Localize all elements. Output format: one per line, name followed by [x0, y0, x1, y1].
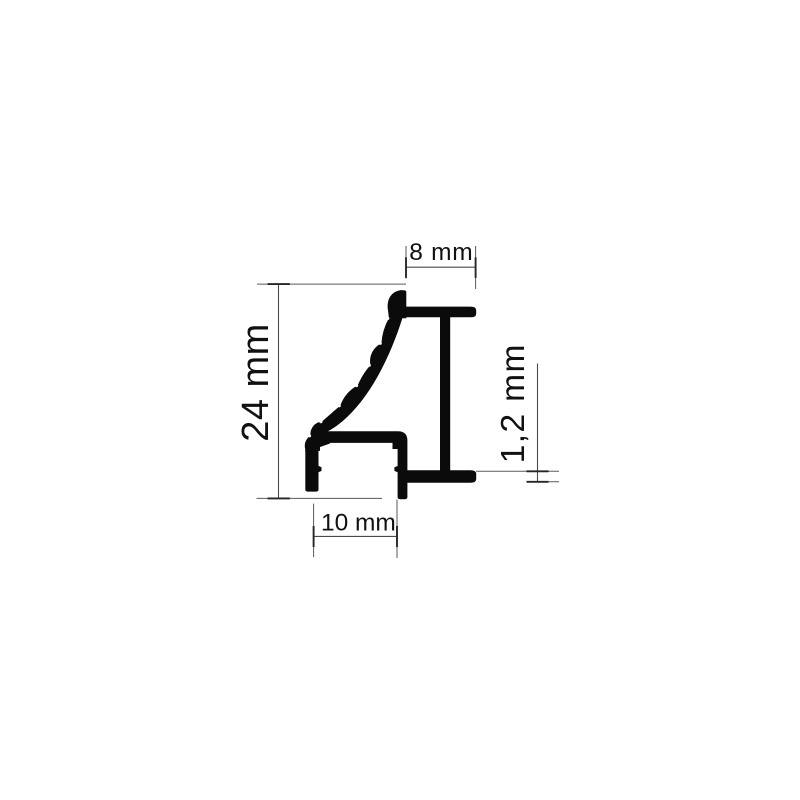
svg-text:10 mm: 10 mm	[321, 510, 396, 537]
svg-text:1,2 mm: 1,2 mm	[495, 343, 532, 463]
svg-text:24 mm: 24 mm	[235, 323, 277, 442]
svg-text:8 mm: 8 mm	[409, 239, 473, 266]
